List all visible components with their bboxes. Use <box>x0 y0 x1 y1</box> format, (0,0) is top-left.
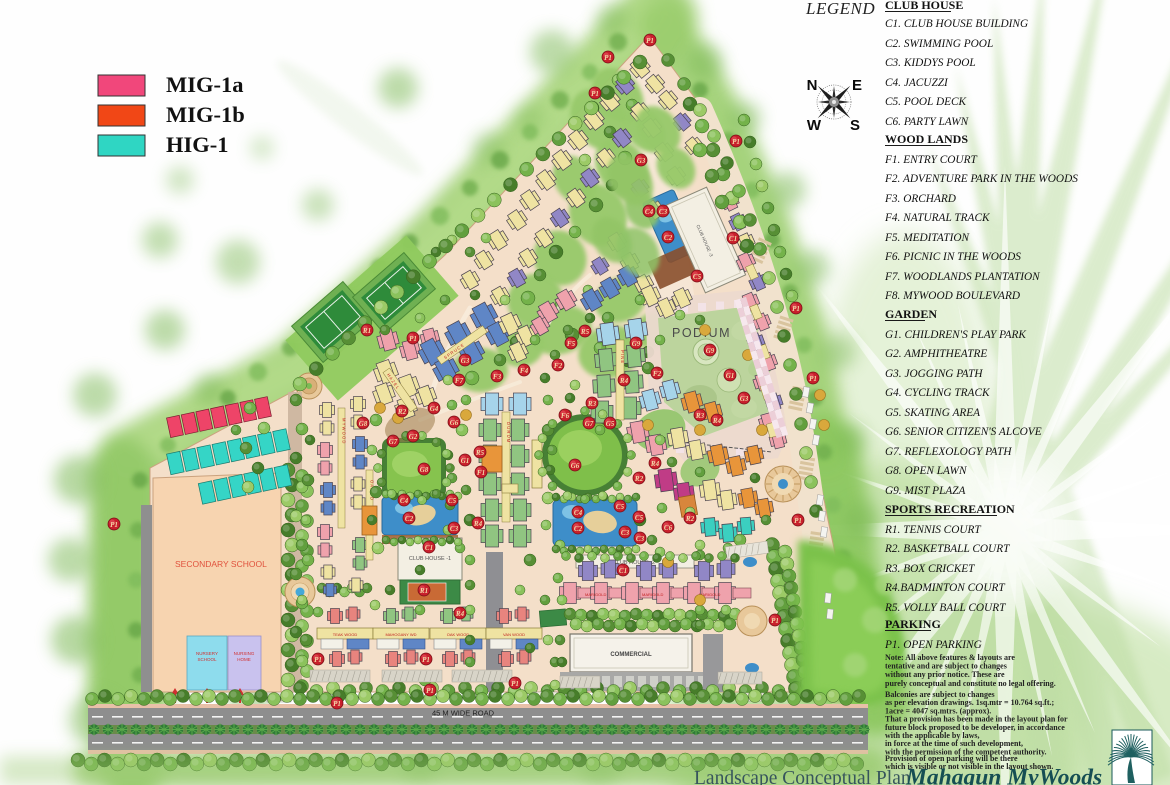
svg-text:F2: F2 <box>554 362 563 370</box>
svg-text:P1: P1 <box>426 687 434 695</box>
svg-text:R2: R2 <box>397 408 407 416</box>
svg-text:SPORTS RECREATION: SPORTS RECREATION <box>885 502 1015 516</box>
svg-text:C3: C3 <box>636 535 645 543</box>
svg-text:C2: C2 <box>574 525 583 533</box>
svg-text:C1: C1 <box>729 235 737 243</box>
svg-text:F8. MYWOOD BOULEVARD: F8. MYWOOD BOULEVARD <box>884 290 1020 302</box>
svg-text:F6: F6 <box>561 412 570 420</box>
svg-text:F6. PICNIC IN THE WOODS: F6. PICNIC IN THE WOODS <box>884 251 1021 263</box>
svg-text:SCHOOL: SCHOOL <box>197 657 217 662</box>
svg-text:F5: F5 <box>567 340 576 348</box>
svg-text:45 M WIDE ROAD: 45 M WIDE ROAD <box>432 709 495 718</box>
svg-text:C2: C2 <box>664 234 673 242</box>
svg-text:R3: R3 <box>587 400 597 408</box>
svg-text:G5. SKATING AREA: G5. SKATING AREA <box>885 407 980 419</box>
svg-text:OAK WOOD: OAK WOOD <box>447 632 470 637</box>
svg-text:C4. JACUZZI: C4. JACUZZI <box>885 77 949 89</box>
svg-text:C1. CLUB HOUSE BUILDING: C1. CLUB HOUSE BUILDING <box>885 18 1028 30</box>
svg-text:G3: G3 <box>461 357 470 365</box>
svg-text:R2: R2 <box>685 515 695 523</box>
svg-text:R1. TENNIS COURT: R1. TENNIS COURT <box>884 524 981 536</box>
svg-text:C4: C4 <box>574 509 583 517</box>
svg-text:C5: C5 <box>693 273 702 281</box>
svg-text:G3: G3 <box>637 157 646 165</box>
svg-text:COMMERCIAL: COMMERCIAL <box>610 652 652 658</box>
svg-text:P1: P1 <box>809 375 817 383</box>
svg-text:C2: C2 <box>405 515 414 523</box>
svg-text:P1: P1 <box>732 138 740 146</box>
svg-text:R4: R4 <box>455 610 465 618</box>
svg-text:F1: F1 <box>477 469 485 477</box>
svg-text:C5: C5 <box>616 503 625 511</box>
svg-text:PARKING: PARKING <box>885 617 941 631</box>
svg-text:P1: P1 <box>646 37 654 45</box>
svg-text:N: N <box>807 77 818 94</box>
svg-text:purely conceptual and constitu: purely conceptual and constitute no lega… <box>885 679 1056 688</box>
svg-text:G2. AMPHITHEATRE: G2. AMPHITHEATRE <box>885 348 987 360</box>
svg-text:E: E <box>852 77 862 94</box>
svg-text:C6: C6 <box>664 524 673 532</box>
svg-text:G4: G4 <box>430 405 439 413</box>
svg-text:F7. WOODLANDS PLANTATION: F7. WOODLANDS PLANTATION <box>884 271 1041 283</box>
svg-text:R4: R4 <box>712 417 722 425</box>
svg-text:P1: P1 <box>333 700 341 708</box>
svg-text:HIG-1: HIG-1 <box>166 132 229 157</box>
svg-text:P1: P1 <box>409 335 417 343</box>
svg-text:Mahagun MyWoods: Mahagun MyWoods <box>905 765 1102 785</box>
svg-text:R4: R4 <box>650 460 660 468</box>
svg-text:F4. NATURAL TRACK: F4. NATURAL TRACK <box>884 212 991 224</box>
svg-text:C5: C5 <box>635 514 644 522</box>
svg-text:F3. ORCHARD: F3. ORCHARD <box>884 193 956 205</box>
svg-text:G4. CYCLING TRACK: G4. CYCLING TRACK <box>885 387 991 399</box>
svg-text:G9. MIST PLAZA: G9. MIST PLAZA <box>885 485 966 497</box>
svg-text:G2: G2 <box>409 433 418 441</box>
svg-text:G8: G8 <box>420 466 429 474</box>
svg-text:G3. JOGGING PATH: G3. JOGGING PATH <box>885 368 983 380</box>
svg-text:M Y W O O D: M Y W O O D <box>342 418 347 443</box>
svg-text:F5. MEDITATION: F5. MEDITATION <box>884 232 971 244</box>
svg-text:R1: R1 <box>419 587 428 595</box>
svg-text:C4: C4 <box>400 497 409 505</box>
svg-text:R4.BADMINTON COURT: R4.BADMINTON COURT <box>884 582 1005 594</box>
svg-text:MARIGOLD: MARIGOLD <box>642 592 663 597</box>
svg-text:R2: R2 <box>634 475 644 483</box>
svg-text:W: W <box>807 117 822 134</box>
svg-text:G9: G9 <box>706 347 715 355</box>
svg-text:SECONDARY SCHOOL: SECONDARY SCHOOL <box>175 559 267 569</box>
svg-text:C4: C4 <box>645 208 654 216</box>
svg-text:G6: G6 <box>450 419 459 427</box>
svg-text:CLUB HOUSE -1: CLUB HOUSE -1 <box>409 556 451 562</box>
svg-text:F4: F4 <box>520 367 529 375</box>
svg-text:S: S <box>850 117 860 134</box>
svg-text:F3: F3 <box>493 373 502 381</box>
svg-text:G6: G6 <box>571 462 580 470</box>
svg-text:G1. CHILDREN'S PLAY PARK: G1. CHILDREN'S PLAY PARK <box>885 329 1027 341</box>
svg-text:WOOD LANDS: WOOD LANDS <box>885 132 968 146</box>
svg-text:R5: R5 <box>475 449 485 457</box>
svg-text:TEAK WOOD: TEAK WOOD <box>333 632 358 637</box>
svg-text:G8: G8 <box>359 420 368 428</box>
svg-text:G5: G5 <box>606 420 615 428</box>
svg-text:G9: G9 <box>632 340 641 348</box>
svg-text:G1: G1 <box>461 457 470 465</box>
svg-text:R3: R3 <box>695 412 705 420</box>
svg-text:VAN WOOD: VAN WOOD <box>503 632 525 637</box>
svg-text:P1: P1 <box>511 680 519 688</box>
svg-text:C3: C3 <box>450 525 459 533</box>
svg-text:R3. BOX CRICKET: R3. BOX CRICKET <box>884 563 975 575</box>
svg-text:G8. OPEN LAWN: G8. OPEN LAWN <box>885 465 968 477</box>
svg-text:LEGEND: LEGEND <box>805 0 875 18</box>
svg-text:C5. POOL DECK: C5. POOL DECK <box>885 96 968 108</box>
svg-text:G7. REFLEXOLOGY PATH: G7. REFLEXOLOGY PATH <box>885 446 1012 458</box>
svg-text:P1: P1 <box>422 656 430 664</box>
svg-text:C2. SWIMMING POOL: C2. SWIMMING POOL <box>885 38 993 50</box>
svg-text:Landscape Conceptual Plan: Landscape Conceptual Plan <box>694 768 911 785</box>
svg-text:P1: P1 <box>604 54 612 62</box>
svg-text:P1: P1 <box>314 656 322 664</box>
svg-text:D U R U M: D U R U M <box>506 422 511 443</box>
svg-text:GARDEN: GARDEN <box>885 307 937 321</box>
svg-text:G3: G3 <box>740 395 749 403</box>
svg-text:P1. OPEN PARKING: P1. OPEN PARKING <box>884 639 982 651</box>
svg-text:R1: R1 <box>362 327 371 335</box>
svg-text:MAHOGANY WD: MAHOGANY WD <box>385 632 416 637</box>
svg-text:R5. VOLLY BALL COURT: R5. VOLLY BALL COURT <box>884 602 1006 614</box>
svg-text:P1: P1 <box>771 617 779 625</box>
svg-text:P1: P1 <box>794 517 802 525</box>
svg-text:HOME: HOME <box>237 657 251 662</box>
svg-text:C3. KIDDYS POOL: C3. KIDDYS POOL <box>885 57 976 69</box>
svg-text:MIG-1b: MIG-1b <box>166 102 245 127</box>
svg-text:F2. ADVENTURE PARK IN THE WOOD: F2. ADVENTURE PARK IN THE WOODS <box>884 173 1078 185</box>
svg-text:NURSING: NURSING <box>234 651 255 656</box>
svg-text:MARIGOLD: MARIGOLD <box>585 592 606 597</box>
svg-text:R4: R4 <box>473 520 483 528</box>
svg-text:CLUB HOUSE: CLUB HOUSE <box>885 0 963 12</box>
svg-text:F1. ENTRY COURT: F1. ENTRY COURT <box>884 154 977 166</box>
svg-text:MIG-1a: MIG-1a <box>166 72 244 97</box>
svg-text:R5: R5 <box>580 328 590 336</box>
svg-text:F2: F2 <box>653 370 662 378</box>
svg-text:C3: C3 <box>621 529 630 537</box>
svg-text:P1: P1 <box>110 521 118 529</box>
svg-text:C5: C5 <box>448 497 457 505</box>
svg-text:P1: P1 <box>792 305 800 313</box>
svg-text:G7: G7 <box>585 420 594 428</box>
svg-text:F7: F7 <box>455 377 464 385</box>
svg-text:P1: P1 <box>591 90 599 98</box>
svg-text:NURSERY: NURSERY <box>196 651 218 656</box>
svg-text:C6. PARTY LAWN: C6. PARTY LAWN <box>885 116 970 128</box>
svg-text:R2. BASKETBALL COURT: R2. BASKETBALL COURT <box>884 543 1010 555</box>
svg-text:C3: C3 <box>659 208 668 216</box>
svg-text:P I N E: P I N E <box>620 350 625 363</box>
svg-text:G6. SENIOR CITIZEN'S ALCOVE: G6. SENIOR CITIZEN'S ALCOVE <box>885 426 1042 438</box>
svg-text:C1: C1 <box>425 544 433 552</box>
svg-text:G1: G1 <box>726 372 735 380</box>
svg-text:G7: G7 <box>389 438 398 446</box>
svg-text:R4: R4 <box>619 377 629 385</box>
svg-text:C1: C1 <box>619 567 627 575</box>
